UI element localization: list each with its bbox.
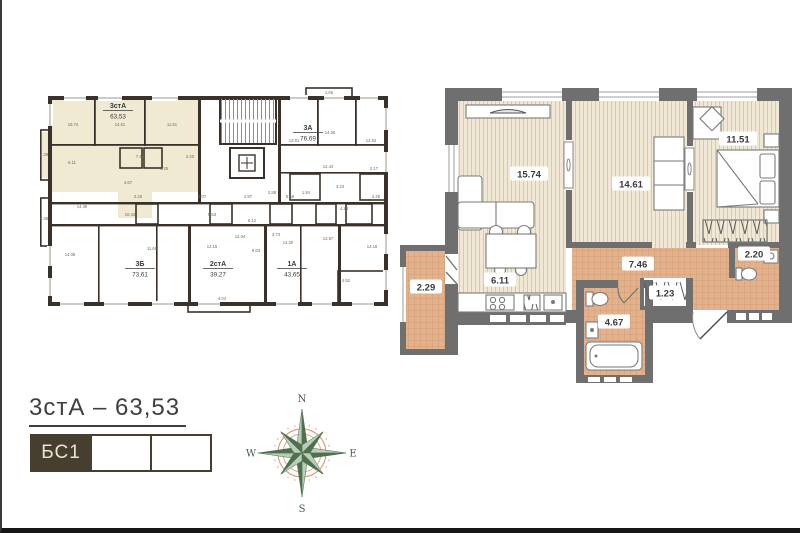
- overview-room-area-label: 13.57: [323, 236, 334, 241]
- compass-east-label: E: [349, 449, 356, 460]
- overview-room-area-label: 12.04: [235, 234, 246, 239]
- overview-room-area-label: 4.48: [372, 194, 381, 199]
- overview-room-area-label: 2.20: [186, 154, 195, 159]
- overview-room-area-label: 5.63: [208, 212, 217, 217]
- overview-room-area-label: 4.04: [218, 296, 227, 301]
- stairwell: [220, 98, 276, 144]
- overview-room-area-label: 4.87: [244, 194, 253, 199]
- sideboard-tv: [466, 105, 550, 118]
- overview-room-area-label: 14.49: [77, 204, 88, 209]
- overview-room-area-label: 2.17: [370, 166, 379, 171]
- svg-text:1.23: 1.23: [656, 289, 675, 300]
- overview-room-area-label: 1.65: [325, 90, 334, 95]
- overview-room-area-label: 6.11: [68, 160, 77, 165]
- section-cell-2[interactable]: [92, 436, 152, 470]
- overview-room-area-label: 1.84: [302, 190, 311, 195]
- svg-text:3стА: 3стА: [110, 103, 126, 110]
- overview-room-area-label: 6.12: [248, 218, 257, 223]
- overview-room-area-label: 11.51: [167, 122, 178, 127]
- svg-text:15.74: 15.74: [517, 170, 541, 181]
- overview-room-area-label: 14.61: [115, 122, 126, 127]
- kitchen-counter: [458, 293, 566, 312]
- overview-room-area-label: 2.36: [40, 216, 49, 221]
- svg-text:2.29: 2.29: [417, 283, 436, 294]
- overview-room-area-label: 1.25: [160, 166, 169, 171]
- section-cell-bs1[interactable]: БС1: [32, 436, 92, 470]
- overview-room-area-label: 12.15: [207, 244, 218, 249]
- compass-dot: [309, 479, 310, 480]
- svg-text:73,61: 73,61: [132, 272, 148, 279]
- svg-text:2.20: 2.20: [745, 250, 764, 261]
- svg-text:3Б: 3Б: [136, 261, 145, 268]
- overview-apartment-label: 3Б73,61: [125, 261, 155, 279]
- balcony-door: [446, 256, 457, 284]
- overview-room-area-label: 14.18: [367, 244, 378, 249]
- compass-dot: [326, 466, 327, 467]
- svg-text:39,27: 39,27: [210, 272, 226, 279]
- overview-room-area-label: 12.52: [366, 138, 377, 143]
- compass-dot: [294, 479, 295, 480]
- pocket-door-living: [564, 142, 573, 188]
- svg-text:2стА: 2стА: [210, 261, 226, 268]
- compass-north-label: N: [298, 394, 307, 405]
- overview-room-area-label: 13.61: [289, 138, 300, 143]
- compass-dot: [287, 477, 288, 478]
- overview-room-area-label: 5.68: [286, 194, 295, 199]
- svg-text:14.61: 14.61: [619, 180, 643, 191]
- overview-room-area-label: 7.46: [136, 154, 145, 159]
- room-area-label: 2.20: [738, 247, 770, 261]
- overview-room-area-label: 4.67: [124, 180, 133, 185]
- room-area-label: 15.74: [510, 167, 548, 181]
- svg-text:7.46: 7.46: [629, 260, 648, 271]
- floorplan-page: 15.7414.6111.516.117.461.252.204.672.292…: [0, 0, 800, 533]
- compass-dot: [274, 445, 275, 446]
- balcony-floor: [406, 251, 445, 349]
- room-area-label: 11.51: [719, 132, 757, 146]
- compass-dot: [277, 466, 278, 467]
- compass-dot: [294, 425, 295, 426]
- bed: [717, 150, 779, 207]
- overview-room-area-label: 3.23: [336, 184, 345, 189]
- wardrobe-1461: [654, 137, 684, 210]
- compass-dot: [328, 445, 329, 446]
- compass-dot: [287, 428, 288, 429]
- compass-dot: [274, 460, 275, 461]
- room-area-label: 4.67: [598, 315, 630, 329]
- compass-rose: N S W E: [244, 390, 360, 516]
- room-area-label: 6.11: [484, 273, 516, 287]
- room-area-label: 14.61: [612, 177, 650, 191]
- svg-text:6.11: 6.11: [491, 276, 510, 287]
- overview-room-area-label: 15.74: [68, 122, 79, 127]
- svg-text:4.67: 4.67: [605, 318, 624, 329]
- apartment-title: 3стА – 63,53: [29, 394, 186, 427]
- overview-room-area-label: 2.26: [134, 194, 143, 199]
- overview-apartment-label: 2стА39,27: [203, 261, 233, 279]
- compass-dot: [315, 428, 316, 429]
- overview-room-area-label: 2.07: [198, 194, 207, 199]
- overview-room-area-label: 11.69: [147, 246, 158, 251]
- entrance-door: [693, 310, 727, 339]
- overview-room-area-label: 14.08: [65, 252, 76, 257]
- section-cell-3[interactable]: [152, 436, 210, 470]
- svg-text:3А: 3А: [304, 125, 313, 132]
- overview-room-area-label: 4.23: [340, 206, 349, 211]
- overview-room-area-label: 14.06: [325, 130, 336, 135]
- overview-room-area-label: 10.44: [125, 212, 136, 217]
- svg-text:1А: 1А: [288, 261, 297, 268]
- wardrobe-bedroom: [703, 220, 767, 242]
- room-area-label: 7.46: [622, 257, 654, 271]
- room-area-label: 1.23: [649, 286, 681, 300]
- overview-room-area-label: 2.88: [268, 190, 277, 195]
- overview-room-area-label: 12.44: [323, 164, 334, 169]
- overview-room-area-label: 2.29: [40, 152, 49, 157]
- overview-room-area-label: 3.73: [272, 232, 281, 237]
- room-area-label: 2.29: [410, 280, 442, 294]
- building-overview-plan: 15.7414.6111.516.117.461.252.204.672.292…: [40, 86, 395, 314]
- compass-dot: [326, 438, 327, 439]
- compass-dot: [309, 425, 310, 426]
- compass-dot: [328, 460, 329, 461]
- overview-room-area-label: 4.52: [342, 278, 351, 283]
- svg-text:43,65: 43,65: [284, 272, 300, 279]
- compass-dot: [277, 438, 278, 439]
- compass-dot: [315, 477, 316, 478]
- overview-room-area-label: 14.20: [283, 240, 294, 245]
- building-section-selector: БС1: [30, 434, 212, 472]
- pocket-door-bedroom: [685, 148, 694, 190]
- elevator: [230, 148, 264, 178]
- svg-text:63,53: 63,53: [110, 114, 126, 121]
- compass-south-label: S: [299, 504, 306, 515]
- compass-west-label: W: [246, 449, 257, 460]
- svg-text:76,69: 76,69: [300, 136, 316, 143]
- compass-star: [258, 409, 346, 497]
- overview-room-area-label: 9.63: [252, 248, 261, 253]
- overview-apartment-label: 1А43,65: [277, 261, 307, 279]
- apartment-detail-plan: 15.7414.6111.512.296.117.461.234.672.20: [390, 82, 800, 387]
- svg-text:11.51: 11.51: [726, 135, 750, 146]
